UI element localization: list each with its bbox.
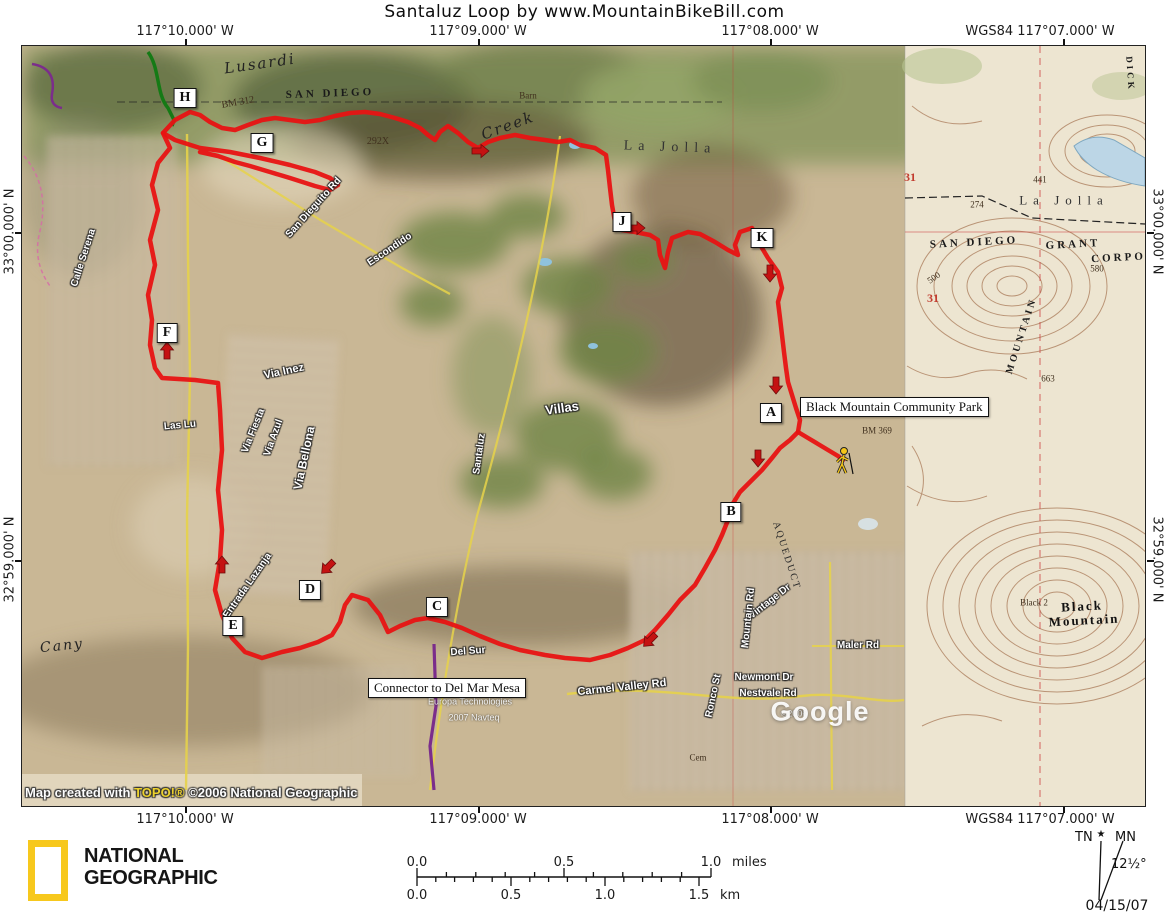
map-area: LusardiCreekSAN DIEGOBarn292XBM 312La Jo… (21, 45, 1146, 807)
map-label: La Jolla (1019, 194, 1109, 207)
waypoint-a: A (760, 403, 782, 423)
declination-diagram: ★ TN MN 12½° (1063, 826, 1169, 906)
callout: Connector to Del Mar Mesa (368, 678, 526, 698)
map-label: 2007 Navteq (448, 714, 499, 723)
coordinate-tick (1063, 806, 1065, 813)
coordinate-tick (770, 806, 772, 813)
map-label: 31 (927, 292, 939, 304)
map-attribution: Map created with TOPO!® ©2006 National G… (25, 785, 357, 800)
scale-km-0: 0.0 (407, 888, 428, 903)
scale-miles-0: 0.0 (407, 855, 428, 870)
callout: Black Mountain Community Park (800, 397, 989, 417)
coordinate-label: WGS84 117°07.000' W (950, 812, 1130, 827)
attribution-prefix: Map created with (25, 785, 134, 800)
coordinate-label: 117°08.000' W (680, 24, 860, 39)
scale-miles-05: 0.5 (554, 855, 575, 870)
waypoint-k: K (751, 228, 774, 248)
natgeo-logo-frame (28, 840, 68, 901)
page: { "title": "Santaluz Loop by www.Mountai… (0, 0, 1169, 917)
waypoint-j: J (613, 212, 632, 232)
map-label: 441 (1033, 176, 1047, 185)
map-label: 580 (1090, 265, 1104, 274)
waypoint-b: B (720, 502, 741, 522)
coordinate-label: 117°10.000' W (95, 812, 275, 827)
scale-km-unit: km (720, 888, 740, 903)
map-date: 04/15/07 (1062, 898, 1169, 914)
map-label: Cem (690, 754, 707, 763)
map-label: Newmont Dr (735, 673, 794, 683)
coordinate-label: WGS84 117°07.000' W (950, 24, 1130, 39)
scale-bar: 0.0 0.5 1.0 miles 0.0 0.5 1.0 1.5 km (394, 846, 774, 910)
coordinate-label: 117°09.000' W (388, 812, 568, 827)
scale-km-15: 1.5 (689, 888, 710, 903)
true-north-star-icon: ★ (1097, 829, 1106, 840)
map-label: Black 2 (1020, 599, 1048, 608)
scale-miles-unit: miles (732, 855, 767, 870)
map-label: Barn (519, 92, 537, 101)
waypoint-h: H (174, 88, 197, 108)
google-watermark: Google (771, 697, 870, 728)
map-label: 292X (367, 137, 389, 147)
coordinate-tick (478, 806, 480, 813)
map-label: 31 (904, 171, 916, 183)
map-label: Mountain (1048, 612, 1119, 629)
magnetic-north-label: MN (1115, 830, 1136, 845)
map-label: Maler Rd (837, 641, 879, 651)
scale-miles-1: 1.0 (701, 855, 722, 870)
waypoint-d: D (299, 580, 321, 600)
page-title: Santaluz Loop by www.MountainBikeBill.co… (0, 2, 1169, 22)
coordinate-tick (1147, 232, 1154, 234)
natgeo-logo-text: NATIONAL GEOGRAPHIC (84, 845, 218, 889)
scale-km-05: 0.5 (501, 888, 522, 903)
map-label: 274 (970, 201, 984, 210)
waypoint-f: F (157, 323, 178, 343)
map-label: DICK (1124, 56, 1135, 92)
coordinate-tick (1147, 560, 1154, 562)
natgeo-line1: NATIONAL (84, 845, 218, 867)
map-label: Europa Technologies (428, 698, 512, 707)
waypoint-e: E (222, 616, 243, 636)
natgeo-line2: GEOGRAPHIC (84, 867, 218, 889)
map-label: BM 369 (862, 427, 892, 436)
coordinate-label: 117°10.000' W (95, 24, 275, 39)
attribution-suffix: ©2006 National Geographic (185, 785, 358, 800)
coordinate-label: 117°08.000' W (680, 812, 860, 827)
coordinate-label: 117°09.000' W (388, 24, 568, 39)
topo-brand: TOPO!® (134, 785, 185, 800)
coordinate-tick (185, 806, 187, 813)
declination-angle: 12½° (1111, 857, 1147, 872)
true-north-label: TN (1074, 830, 1093, 845)
map-label: 663 (1041, 375, 1055, 384)
waypoint-c: C (426, 597, 448, 617)
waypoint-g: G (251, 133, 274, 153)
scale-km-1: 1.0 (595, 888, 616, 903)
